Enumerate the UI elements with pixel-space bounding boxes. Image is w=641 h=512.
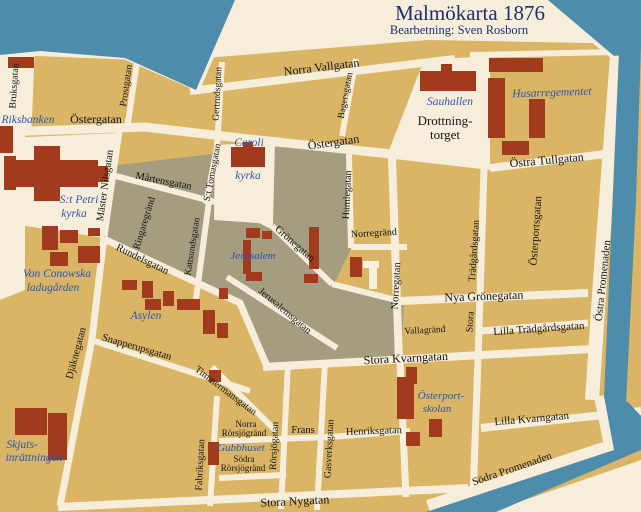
label-skjuts-2: inrättningen — [6, 452, 63, 464]
petri-nave — [14, 160, 98, 187]
asylen-7 — [217, 323, 228, 338]
asylen-6 — [203, 310, 215, 334]
malmo-map-1876: Malmökarta 1876Bearbetning: Sven Rosborn… — [0, 0, 641, 512]
asylen-2 — [142, 281, 153, 298]
husar-middle — [529, 99, 545, 138]
label-conowska-1: Von Conowska — [23, 268, 91, 280]
label-stora-t: Stora — [464, 310, 476, 332]
label-ostergatan-w: Östergatan — [70, 112, 122, 126]
label-osterport-2: skolan — [423, 403, 452, 415]
label-petri-1: S:t Petri — [60, 194, 99, 206]
jerusalem-north1 — [246, 228, 260, 238]
conowska-2 — [60, 230, 78, 243]
street-sodra-rorsjogrand — [219, 475, 286, 478]
label-gubbhuset: Gubbhuset — [217, 442, 266, 454]
jerusalem-southeast — [304, 274, 318, 283]
label-asylen: Asylen — [130, 310, 162, 322]
label-frans: Frans — [291, 425, 314, 436]
label-riksbanken: Riksbanken — [0, 114, 54, 126]
husar-south — [502, 141, 529, 155]
sauhallen-annex — [441, 64, 452, 72]
asylen-3 — [145, 299, 161, 310]
label-skjuts-1: Skjuts- — [6, 439, 37, 451]
conowska-4 — [78, 246, 100, 263]
label-subtitle: Bearbetning: Sven Rosborn — [390, 23, 529, 37]
asylen-5 — [177, 299, 200, 310]
building-riksbanken — [0, 126, 13, 153]
building-norregrand — [350, 257, 362, 277]
courtyard-stem — [369, 268, 377, 289]
skolan-south — [406, 432, 420, 446]
husar-north — [489, 58, 543, 72]
map-canvas: Malmökarta 1876Bearbetning: Sven Rosborn… — [0, 0, 641, 512]
skjuts-west — [15, 408, 47, 435]
courtyard-bar — [363, 261, 379, 268]
conowska-5 — [88, 228, 100, 236]
label-caroli-2: kyrka — [235, 170, 261, 182]
label-conowska-2: ladugården — [27, 281, 80, 294]
caroli-body — [231, 147, 265, 167]
label-drottning-1: Drottning- — [418, 113, 473, 128]
label-henriksgatan: Henriksgatan — [346, 425, 403, 438]
asylen-4 — [163, 291, 174, 306]
skolan-east — [429, 419, 442, 437]
label-petri-2: kyrka — [61, 208, 87, 220]
label-osterport-1: Österport- — [418, 390, 465, 402]
label-sauhallen: Sauhallen — [427, 96, 473, 108]
jerusalem-north2 — [262, 231, 272, 239]
conowska-3 — [50, 252, 68, 266]
label-sodra-r-2: Rörsjögränd — [221, 463, 266, 473]
husar-west — [488, 78, 505, 138]
petri-south-arm — [34, 185, 60, 201]
label-drottning-2: torget — [430, 127, 460, 142]
jerusalem-south — [246, 272, 262, 281]
margin-north-husar — [470, 52, 616, 55]
conowska-1 — [42, 226, 58, 250]
label-caroli-1: Caroli — [234, 137, 264, 149]
asylen-1 — [122, 280, 137, 290]
skolan-main — [397, 377, 414, 419]
label-title: Malmökarta 1876 — [395, 1, 545, 25]
petri-tower — [4, 156, 16, 190]
petri-north-arm — [34, 146, 60, 162]
label-norra-r-2: Rörsjögränd — [222, 428, 267, 438]
asylen-8 — [219, 288, 228, 299]
sauhallen-hall — [420, 71, 476, 91]
label-jerusalem: Jerusalem — [230, 250, 275, 262]
label-nya-gronegatan: Nya Grönegatan — [444, 288, 523, 305]
